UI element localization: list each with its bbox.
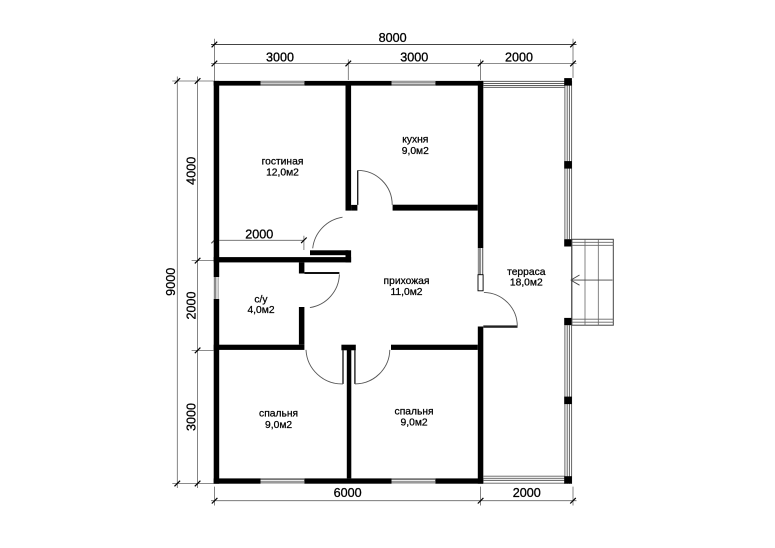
svg-text:2000: 2000 — [505, 50, 533, 64]
svg-text:3000: 3000 — [266, 50, 294, 64]
svg-text:3000: 3000 — [400, 50, 428, 64]
svg-text:прихожая: прихожая — [384, 276, 430, 287]
svg-text:9,0м2: 9,0м2 — [401, 418, 428, 429]
svg-text:спальня: спальня — [259, 409, 298, 420]
svg-text:18,0м2: 18,0м2 — [510, 278, 543, 289]
svg-text:гостиная: гостиная — [262, 157, 304, 168]
svg-text:2000: 2000 — [184, 291, 198, 319]
svg-text:кухня: кухня — [402, 135, 428, 146]
svg-text:2000: 2000 — [245, 227, 273, 241]
svg-text:с/у: с/у — [254, 294, 268, 305]
svg-text:терраса: терраса — [507, 267, 546, 278]
svg-text:4000: 4000 — [184, 157, 198, 185]
svg-text:9000: 9000 — [164, 268, 178, 296]
svg-text:2000: 2000 — [513, 486, 541, 500]
svg-text:12,0м2: 12,0м2 — [266, 168, 299, 179]
svg-text:8000: 8000 — [379, 31, 407, 45]
svg-text:11,0м2: 11,0м2 — [390, 287, 422, 298]
svg-text:9,0м2: 9,0м2 — [265, 420, 292, 431]
svg-text:3000: 3000 — [184, 403, 198, 431]
svg-text:4,0м2: 4,0м2 — [247, 305, 274, 316]
svg-text:спальня: спальня — [395, 406, 434, 417]
svg-text:9,0м2: 9,0м2 — [402, 146, 429, 157]
svg-text:6000: 6000 — [334, 486, 362, 500]
